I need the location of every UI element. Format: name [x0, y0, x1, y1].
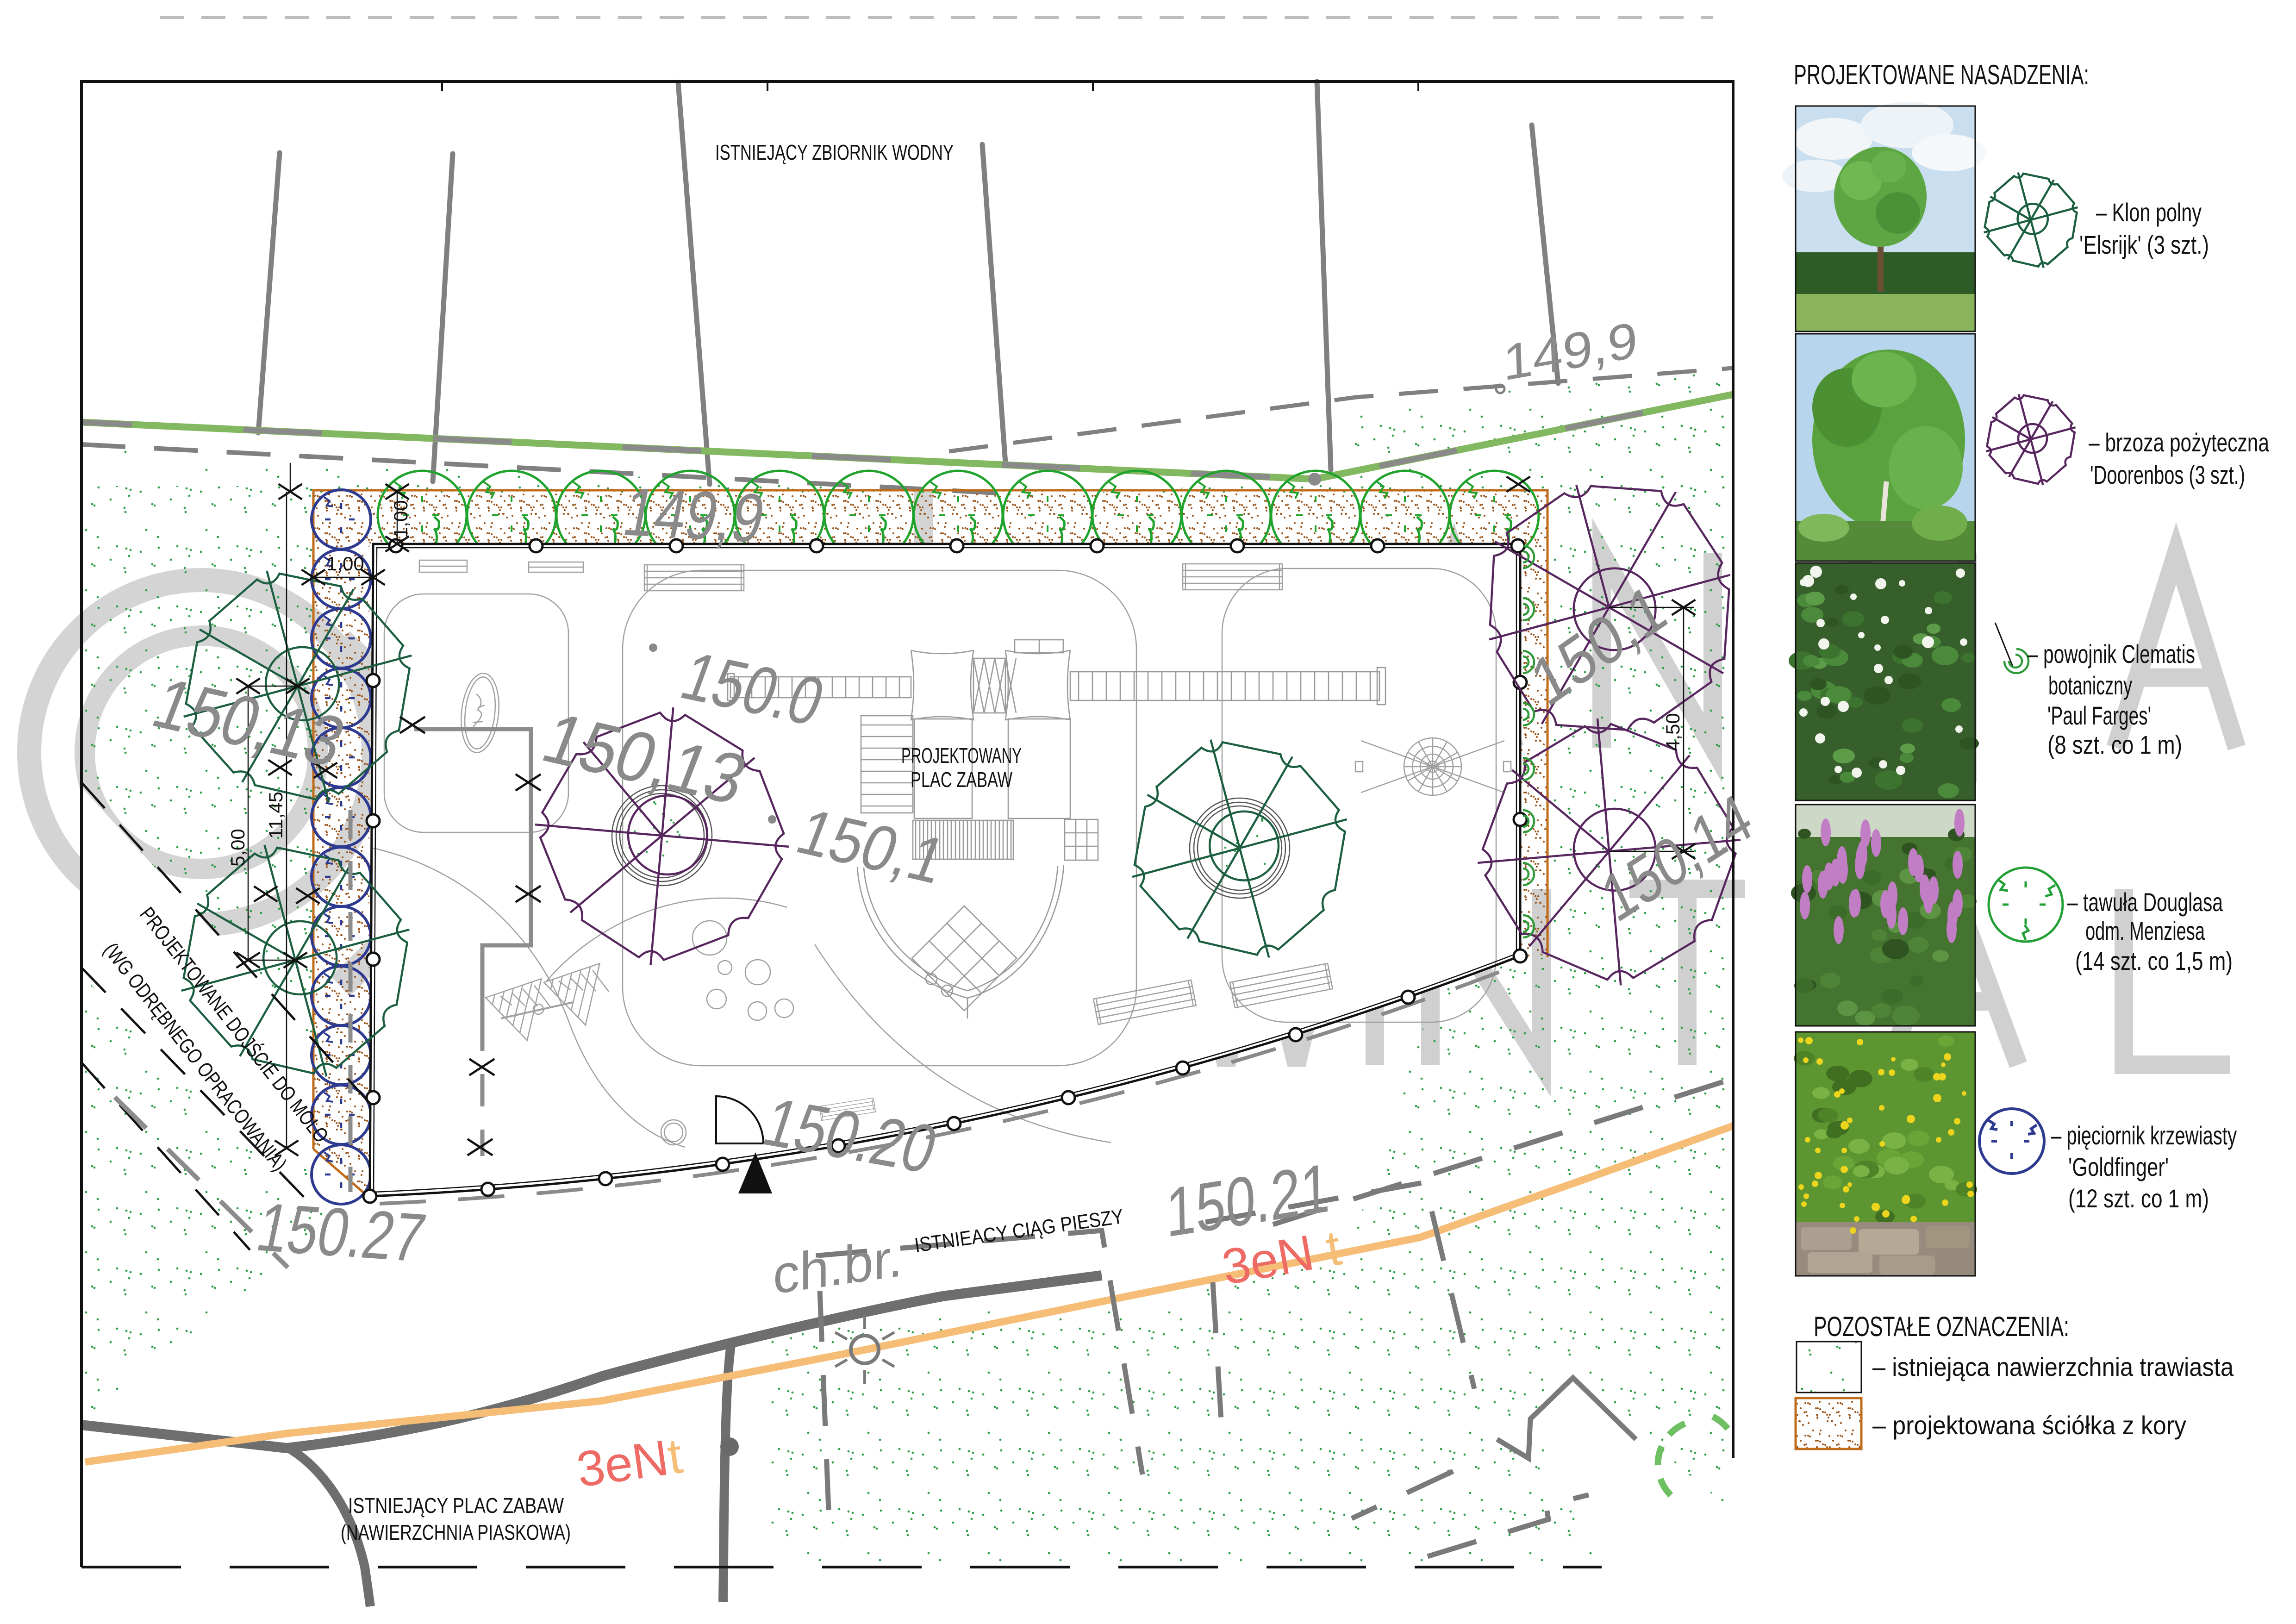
svg-text:– projektowana ściółka z kory: – projektowana ściółka z kory	[1872, 1411, 2186, 1440]
svg-text:1,00: 1,00	[326, 553, 364, 575]
svg-text:– brzoza pożyteczna: – brzoza pożyteczna	[2089, 428, 2270, 457]
svg-text:POZOSTAŁE OZNACZENIA:: POZOSTAŁE OZNACZENIA:	[1814, 1311, 2069, 1342]
svg-text:5,00: 5,00	[227, 829, 249, 867]
svg-text:150.27: 150.27	[250, 1188, 432, 1276]
svg-text:PROJEKTOWANY: PROJEKTOWANY	[901, 743, 1022, 768]
svg-text:odm. Menziesa: odm. Menziesa	[2085, 916, 2205, 945]
svg-text:149,9: 149,9	[618, 473, 771, 556]
svg-text:ISTNIEJĄCY PLAC ZABAW: ISTNIEJĄCY PLAC ZABAW	[348, 1493, 564, 1518]
svg-text:PROJEKTOWANE NASADZENIA:: PROJEKTOWANE NASADZENIA:	[1794, 59, 2089, 90]
svg-text:(14 szt. co 1,5 m): (14 szt. co 1,5 m)	[2075, 946, 2233, 975]
svg-text:– powojnik Clematis: – powojnik Clematis	[2028, 639, 2195, 668]
svg-text:1,00: 1,00	[390, 500, 412, 538]
svg-text:– Klon polny: – Klon polny	[2096, 198, 2202, 227]
svg-text:'Goldfinger': 'Goldfinger'	[2068, 1152, 2169, 1181]
svg-text:4,50: 4,50	[1662, 713, 1684, 751]
svg-text:– istniejąca nawierzchnia traw: – istniejąca nawierzchnia trawiasta	[1872, 1352, 2234, 1381]
svg-text:(12 szt. co 1 m): (12 szt. co 1 m)	[2068, 1184, 2209, 1213]
svg-text:'Doorenbos (3 szt.): 'Doorenbos (3 szt.)	[2090, 460, 2245, 489]
svg-text:(NAWIERZCHNIA PIASKOWA): (NAWIERZCHNIA PIASKOWA)	[341, 1520, 571, 1544]
svg-text:– pięciornik krzewiasty: – pięciornik krzewiasty	[2051, 1121, 2237, 1150]
svg-text:– tawuła Douglasa: – tawuła Douglasa	[2067, 887, 2223, 917]
svg-text:ISTNIEJĄCY ZBIORNIK WODNY: ISTNIEJĄCY ZBIORNIK WODNY	[715, 140, 954, 164]
svg-text:'Elsrijk' (3 szt.): 'Elsrijk' (3 szt.)	[2079, 230, 2209, 259]
svg-text:11,45: 11,45	[265, 792, 287, 839]
svg-text:(8 szt. co 1 m): (8 szt. co 1 m)	[2047, 730, 2182, 759]
svg-text:'Paul Farges': 'Paul Farges'	[2047, 701, 2151, 730]
svg-text:PLAC ZABAW: PLAC ZABAW	[911, 768, 1012, 792]
svg-text:botaniczny: botaniczny	[2048, 671, 2132, 700]
